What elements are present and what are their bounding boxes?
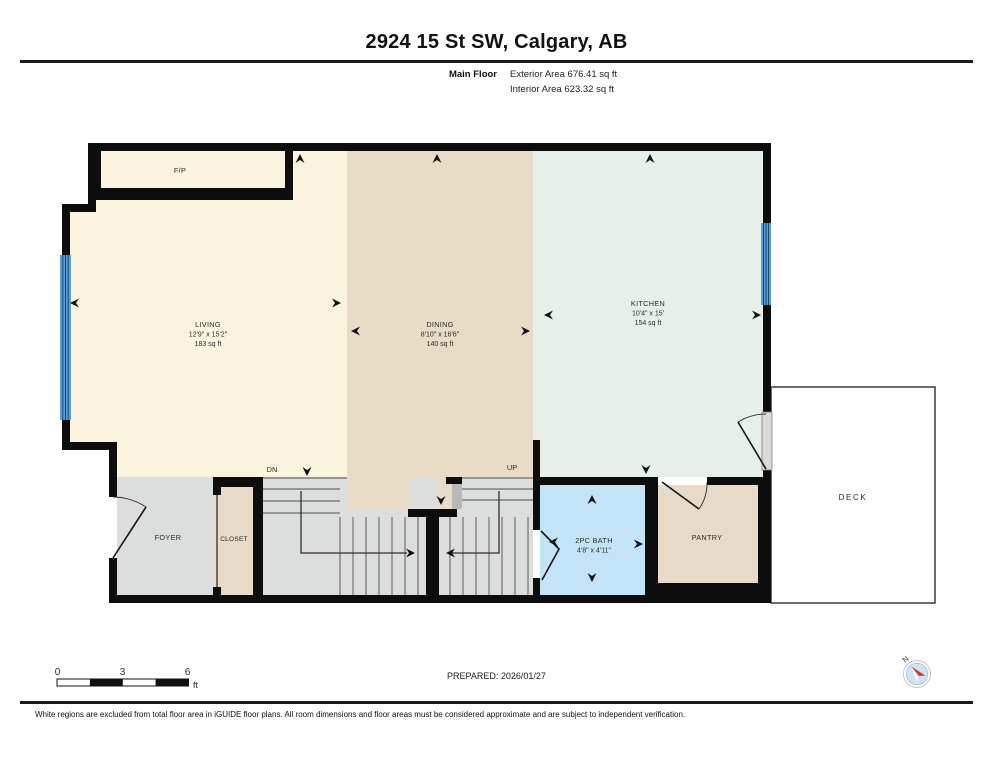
bath-label: 2PC BATH bbox=[575, 536, 613, 545]
living-room-label: LIVING bbox=[195, 320, 221, 329]
dining-room-area: 140 sq ft bbox=[427, 341, 454, 348]
kitchen-window bbox=[761, 223, 771, 305]
kitchen-dims: 10'4" x 15' bbox=[632, 311, 664, 318]
deck-label: DECK bbox=[839, 493, 868, 502]
stairs-up-label: UP bbox=[507, 463, 517, 472]
floorplan-page: 2924 15 St SW, Calgary, AB Main Floor Ex… bbox=[0, 0, 993, 768]
living-window bbox=[60, 255, 71, 420]
bath-dims: 4'8" x 4'11" bbox=[577, 548, 611, 555]
disclaimer-text: White regions are excluded from total fl… bbox=[35, 710, 973, 719]
footer-divider bbox=[20, 701, 973, 704]
dining-room-floor bbox=[347, 151, 533, 477]
room-floors bbox=[70, 151, 763, 595]
kitchen-area: 154 sq ft bbox=[635, 320, 662, 327]
compass: N bbox=[898, 652, 930, 687]
dining-floor-extension bbox=[347, 477, 410, 510]
closet-label: CLOSET bbox=[220, 536, 248, 543]
fireplace-label: F/P bbox=[174, 166, 186, 175]
living-room-dims: 12'9" x 15'2" bbox=[189, 332, 228, 339]
dining-room-label: DINING bbox=[426, 320, 453, 329]
living-room-area: 183 sq ft bbox=[195, 341, 222, 348]
foyer-label: FOYER bbox=[155, 533, 182, 542]
stairs-down-label: DN bbox=[267, 465, 278, 474]
dining-room-dims: 8'10" x 16'6" bbox=[421, 332, 460, 339]
floorplan-drawing: F/P LIVING 12'9" x 15'2" 183 sq ft DININ… bbox=[0, 0, 993, 768]
pantry-label: PANTRY bbox=[692, 533, 723, 542]
fireplace-niche bbox=[101, 151, 285, 188]
scale-unit-label: ft bbox=[193, 680, 199, 690]
prepared-date: PREPARED: 2026/01/27 bbox=[0, 671, 993, 681]
kitchen-label: KITCHEN bbox=[631, 299, 665, 308]
